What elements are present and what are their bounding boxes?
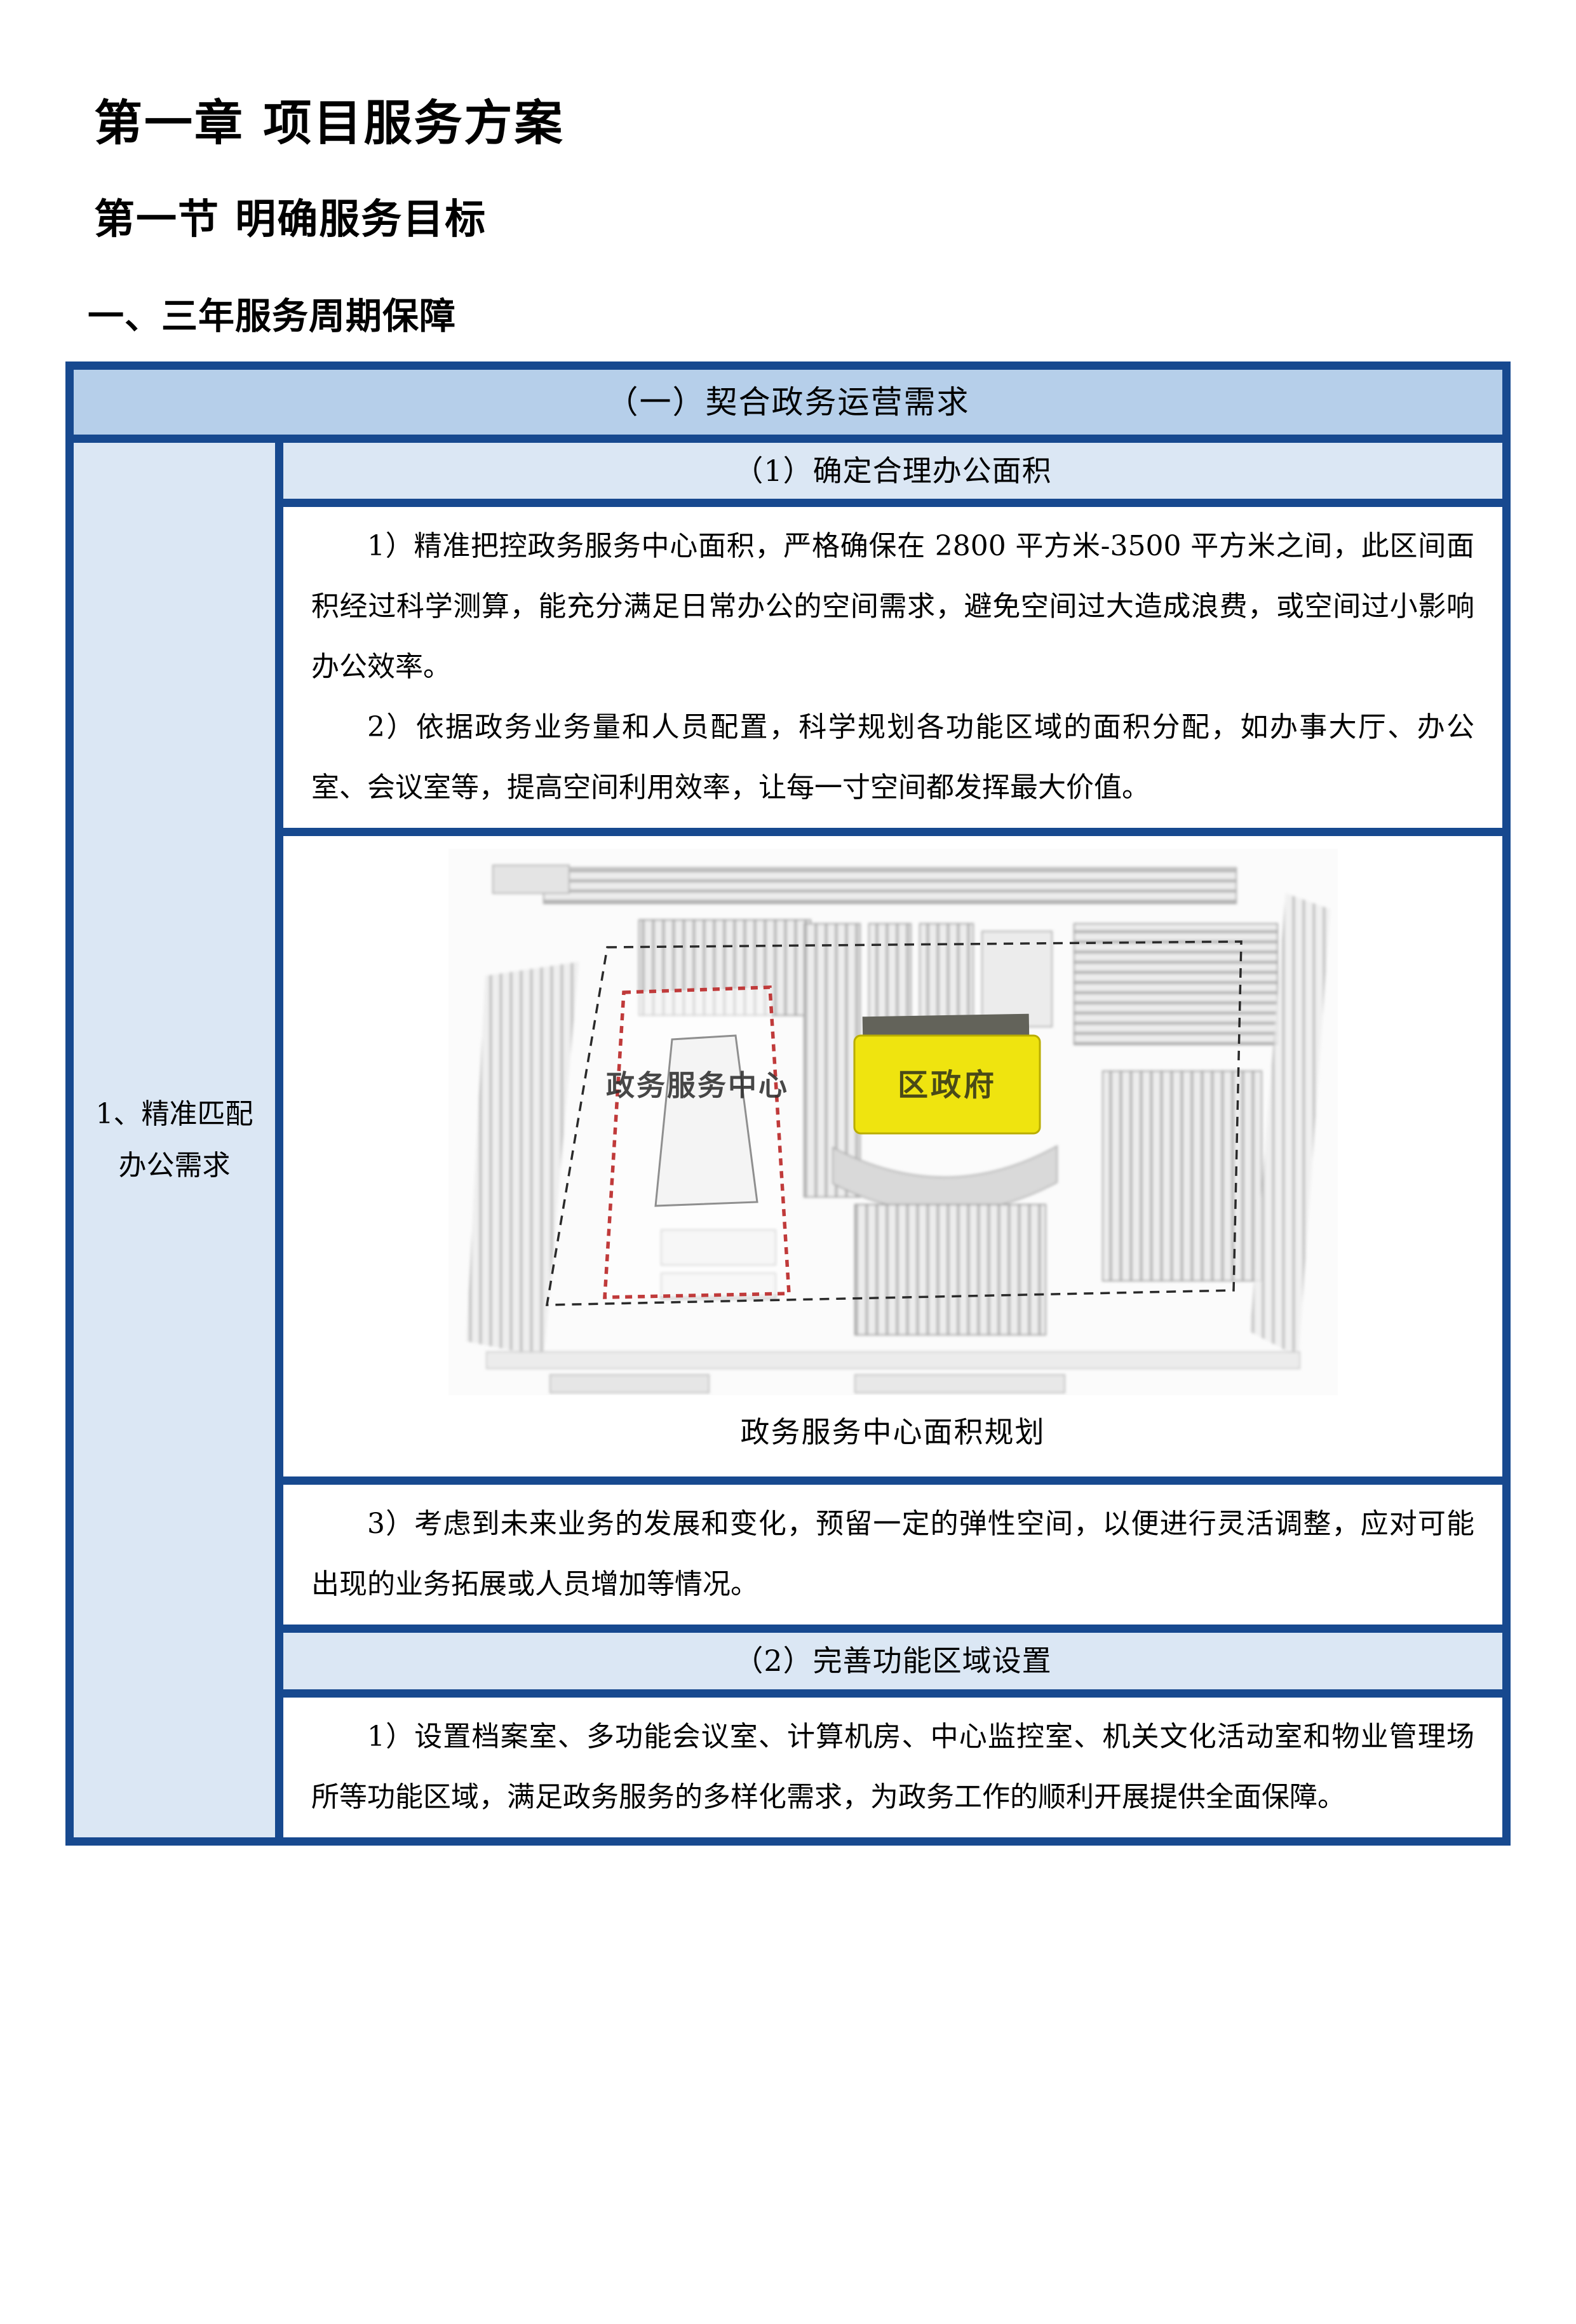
paragraph-function-zones: 1）设置档案室、多功能会议室、计算机房、中心监控室、机关文化活动室和物业管理场所…: [311, 1706, 1474, 1827]
section-title: 第一节 明确服务目标: [94, 196, 1576, 243]
function-zones-paragraph-cell: 1）设置档案室、多功能会议室、计算机房、中心监控室、机关文化活动室和物业管理场所…: [283, 1698, 1502, 1837]
service-plan-table: （一）契合政务运营需求 1、精准匹配办公需求 （1）确定合理办公面积 1）精准把…: [65, 361, 1511, 1846]
paragraph-flexible-space: 3）考虑到未来业务的发展和变化，预留一定的弹性空间，以便进行灵活调整，应对可能出…: [311, 1494, 1474, 1614]
site-plan-image: 政务服务中心 区政府: [448, 849, 1338, 1395]
row-group-label: 1、精准匹配办公需求: [74, 443, 283, 1837]
figure-caption: 政务服务中心面积规划: [283, 1409, 1502, 1451]
subheader-office-area: （1）确定合理办公面积: [283, 443, 1502, 507]
site-plan-figure-cell: 政务服务中心 区政府 政务服务中心面积规划: [283, 836, 1502, 1485]
table-body: 1、精准匹配办公需求 （1）确定合理办公面积 1）精准把控政务服务中心面积，严格…: [74, 443, 1502, 1837]
office-area-paragraphs: 1）精准把控政务服务中心面积，严格确保在 2800 平方米-3500 平方米之间…: [283, 507, 1502, 836]
district-gov-label: 区政府: [897, 1067, 996, 1103]
flexible-space-paragraph-cell: 3）考虑到未来业务的发展和变化，预留一定的弹性空间，以便进行灵活调整，应对可能出…: [283, 1485, 1502, 1633]
chapter-title: 第一章 项目服务方案: [94, 95, 1576, 151]
district-gov-zone: 区政府: [854, 1014, 1040, 1133]
paragraph-area-control: 1）精准把控政务服务中心面积，严格确保在 2800 平方米-3500 平方米之间…: [311, 516, 1474, 697]
paragraph-area-allocation: 2）依据政务业务量和人员配置，科学规划各功能区域的面积分配，如办事大厅、办公室、…: [311, 697, 1474, 818]
table-right-column: （1）确定合理办公面积 1）精准把控政务服务中心面积，严格确保在 2800 平方…: [283, 443, 1502, 1837]
service-center-label: 政务服务中心: [605, 1069, 788, 1102]
subheader-function-zones: （2）完善功能区域设置: [283, 1633, 1502, 1697]
table-header: （一）契合政务运营需求: [74, 370, 1502, 443]
service-center-zone: 政务服务中心: [605, 987, 789, 1297]
subsection-title: 一、三年服务周期保障: [88, 295, 1576, 337]
